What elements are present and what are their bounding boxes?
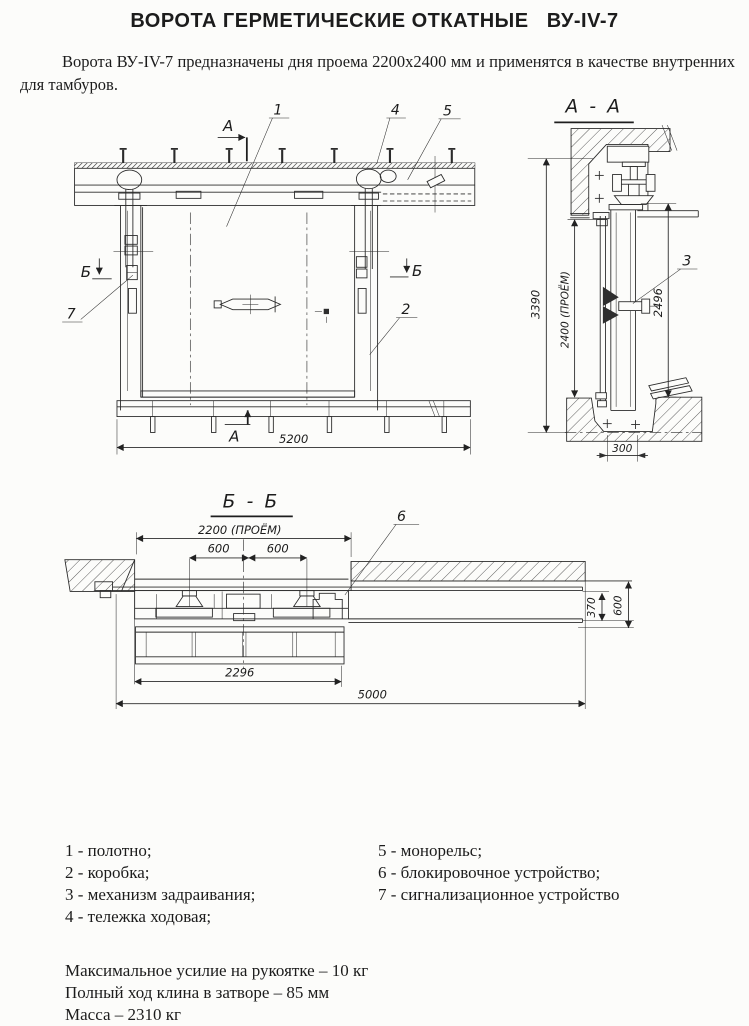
section-mark-a-bottom: А <box>228 427 239 445</box>
section-bb: Б - Б <box>65 492 634 709</box>
dim-300: 300 <box>612 443 632 455</box>
section-aa-title: А - А <box>564 97 622 118</box>
anchor-bolts <box>120 149 456 163</box>
trolley-left <box>117 170 142 189</box>
spec-line: Максимальное усилие на рукоятке – 10 кг <box>65 960 368 982</box>
page-title: ВОРОТА ГЕРМЕТИЧЕСКИЕ ОТКАТНЫЕ ВУ-IV-7 <box>0 10 749 33</box>
frame-posts <box>114 205 381 410</box>
legend-item: 5 - монорельс; <box>378 840 619 862</box>
intro-paragraph: Ворота ВУ-IV-7 предназначены дня проема … <box>20 50 735 96</box>
legend-column-left: 1 - полотно; 2 - коробка; 3 - механизм з… <box>65 840 255 928</box>
section-mark-b-right: Б <box>412 262 422 280</box>
legend-item: 7 - сигнализационное устройство <box>378 884 619 906</box>
scanned-drawing-page: { "title": "ВОРОТА ГЕРМЕТИЧЕСКИЕ ОТКАТНЫ… <box>0 0 749 1024</box>
front-view: 5200 А А Б Б 1 4 5 7 2 <box>62 102 475 454</box>
dim-370: 370 <box>586 597 598 617</box>
dim-2400-opening: 2400 (ПРОЁМ) <box>558 271 571 348</box>
frame-plan <box>136 627 344 664</box>
callout-2: 2 <box>401 302 410 318</box>
callout-7: 7 <box>67 307 76 323</box>
dim-3390: 3390 <box>528 290 542 319</box>
dim-2296: 2296 <box>225 665 254 679</box>
gate-leaf <box>141 207 355 405</box>
legend-item: 4 - тележка ходовая; <box>65 906 255 928</box>
trolley-right <box>356 169 381 188</box>
section-aa: А - А <box>528 97 702 462</box>
gate-mechanism-plan <box>135 591 349 621</box>
dim-5200: 5200 <box>279 432 308 446</box>
section-mark-a-top: А <box>222 117 233 135</box>
legend-column-right: 5 - монорельс; 6 - блокировочное устройс… <box>378 840 619 906</box>
technical-drawing: 5200 А А Б Б 1 4 5 7 2 А - А <box>0 95 749 815</box>
legend-item: 3 - механизм задраивания; <box>65 884 255 906</box>
spec-line: Полный ход клина в затворе – 85 мм <box>65 982 368 1004</box>
legend-item: 6 - блокировочное устройство; <box>378 862 619 884</box>
sill <box>117 391 470 433</box>
section-bb-title: Б - Б <box>223 492 280 513</box>
callout-6: 6 <box>397 509 406 525</box>
dim-5000: 5000 <box>358 687 387 701</box>
section-mark-b-left: Б <box>81 263 91 281</box>
callout-3: 3 <box>682 254 691 270</box>
floor-concrete <box>567 397 702 441</box>
rail-bracket <box>607 146 649 162</box>
trolley-wheel <box>613 175 622 192</box>
break-mark <box>427 175 445 188</box>
legend-item: 2 - коробка; <box>65 862 255 884</box>
callout-5: 5 <box>443 103 452 119</box>
monorail-section <box>630 167 637 180</box>
trolley-wheel <box>646 175 655 192</box>
callout-4: 4 <box>391 102 400 118</box>
legend-item: 1 - полотно; <box>65 840 255 862</box>
dim-600-left: 600 <box>208 542 230 556</box>
dim-2496: 2496 <box>651 288 665 317</box>
spec-line: Масса – 2310 кг <box>65 1004 368 1026</box>
dim-2200-opening: 2200 (ПРОЁМ) <box>198 522 282 537</box>
wall-right <box>351 561 585 580</box>
dim-600-right: 600 <box>267 542 289 556</box>
callout-1: 1 <box>273 102 282 118</box>
specifications: Максимальное усилие на рукоятке – 10 кг … <box>65 960 368 1026</box>
dim-600-vertical: 600 <box>612 595 624 615</box>
